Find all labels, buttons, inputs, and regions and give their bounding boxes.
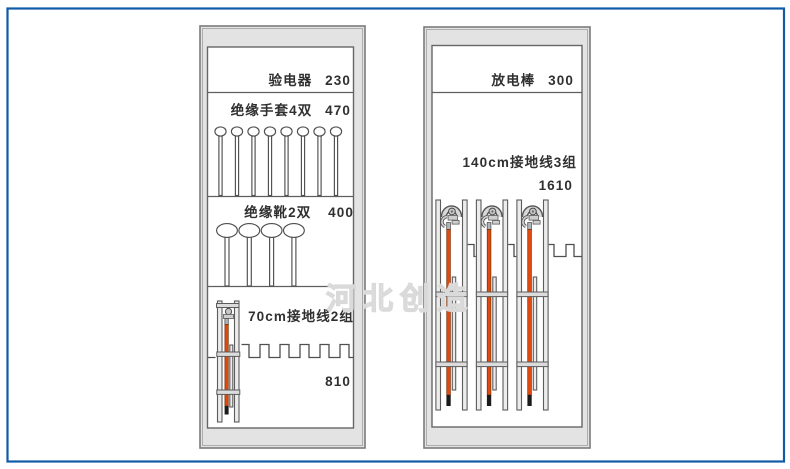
- crossbar: [517, 292, 548, 297]
- assembly-rail: [218, 301, 223, 422]
- glove-hanger-top: [314, 127, 325, 136]
- boot-hanger-top: [284, 224, 305, 238]
- rod-ferrule: [528, 223, 532, 230]
- clamp: [529, 216, 538, 221]
- grounding-wire-assembly: [476, 198, 508, 411]
- crossbar: [217, 390, 240, 394]
- grounding-rod: [487, 230, 491, 396]
- glove-hanger-top: [264, 127, 275, 136]
- boot-hanger-top: [261, 224, 282, 238]
- pulley-pin: [532, 210, 534, 212]
- boot-hanger-top: [217, 224, 238, 238]
- section-value-810: 810: [325, 374, 351, 389]
- pulley-pin: [491, 210, 493, 212]
- clamp: [489, 216, 498, 221]
- section-label-discharge-rod: 放电棒 300: [491, 72, 575, 88]
- label-value: 470: [325, 103, 351, 118]
- glove-hanger-stem: [301, 136, 304, 196]
- label-text: 验电器: [269, 72, 313, 88]
- assembly-rail: [235, 301, 240, 422]
- grounding-rod: [528, 230, 532, 396]
- glove-hanger-stem: [219, 136, 222, 196]
- glove-hanger-top: [330, 127, 341, 136]
- rod-tip: [446, 395, 450, 406]
- label-text: 放电棒: [491, 72, 536, 88]
- assembly-rail: [503, 200, 508, 410]
- section-label-ground-wire-140cm: 140cm接地线3组: [462, 154, 577, 170]
- rod-tip: [527, 395, 531, 406]
- left-cabinet: 验电器 230 绝缘手套4双 470 绝缘靴2双 400 70cm接地线2组 8…: [200, 26, 365, 448]
- clamp: [533, 221, 540, 225]
- rod-ferrule: [225, 319, 228, 325]
- glove-hanger-top: [297, 127, 308, 136]
- section-value-1610: 1610: [539, 178, 573, 193]
- glove-hanger-stem: [318, 136, 321, 196]
- section-label-gloves: 绝缘手套4双 470: [231, 102, 351, 118]
- clamp: [493, 221, 500, 225]
- watermark: 河北创造: [326, 283, 474, 316]
- glove-hanger-stem: [285, 136, 288, 196]
- glove-hanger-top: [281, 127, 292, 136]
- glove-hanger-stem: [252, 136, 255, 196]
- boot-hanger-stem: [292, 237, 296, 286]
- assembly-rail: [517, 200, 522, 410]
- glove-hanger-top: [248, 127, 259, 136]
- grounding-wire-assembly: [516, 198, 548, 411]
- cabinet-layout-diagram: 验电器 230 绝缘手套4双 470 绝缘靴2双 400 70cm接地线2组 8…: [0, 0, 790, 469]
- rod-ferrule: [447, 223, 451, 230]
- diagram-page: 验电器 230 绝缘手套4双 470 绝缘靴2双 400 70cm接地线2组 8…: [0, 0, 790, 469]
- label-value: 230: [325, 73, 351, 88]
- section-label-electroscope: 验电器 230: [269, 72, 352, 88]
- glove-hanger-stem: [268, 136, 271, 196]
- crossbar: [217, 352, 240, 356]
- label-text: 绝缘靴2双: [244, 204, 311, 220]
- rod-ferrule: [487, 223, 491, 230]
- rod-tip: [225, 406, 229, 415]
- glove-hanger-top: [231, 127, 242, 136]
- assembly-top-bar: [217, 304, 240, 308]
- glove-hanger-stem: [235, 136, 238, 196]
- assembly-rail: [476, 200, 481, 410]
- boot-hanger-stem: [247, 237, 251, 286]
- boot-hanger-stem: [270, 237, 274, 286]
- label-text: 绝缘手套4双: [231, 102, 313, 118]
- boot-hanger-top: [239, 224, 260, 238]
- glove-hanger-top: [215, 127, 226, 136]
- clamp: [452, 221, 459, 225]
- pulley: [225, 308, 231, 314]
- label-value: 400: [328, 205, 354, 220]
- clamp: [448, 216, 457, 221]
- section-label-boots: 绝缘靴2双 400: [244, 204, 354, 220]
- right-cabinet: 放电棒 300 140cm接地线3组 1610: [424, 27, 590, 448]
- glove-hanger-stem: [334, 136, 337, 196]
- crossbar: [517, 362, 548, 367]
- page-border: [8, 9, 785, 462]
- boot-hanger-stem: [225, 237, 229, 286]
- assembly-rail: [544, 200, 549, 410]
- pulley-pin: [451, 210, 453, 212]
- label-value: 300: [548, 73, 574, 88]
- clamp: [224, 315, 234, 319]
- rod-tip: [487, 395, 491, 406]
- crossbar: [476, 292, 507, 297]
- crossbar: [476, 362, 507, 367]
- grounding-wire-assembly: [216, 299, 242, 424]
- crossbar: [436, 362, 467, 367]
